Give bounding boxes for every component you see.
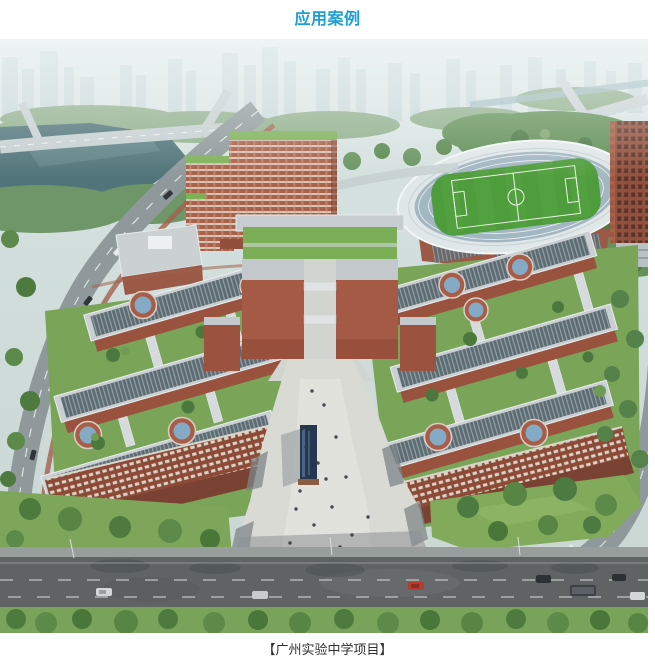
bottom-road: [0, 537, 648, 613]
campus-aerial-figure: [0, 39, 648, 633]
gate-monument: [281, 425, 319, 487]
application-case-section: 应用案例: [0, 0, 655, 656]
atmospheric-haze: [0, 39, 648, 179]
sky-bridge: [304, 315, 336, 324]
image-caption: 【广州实验中学项目】: [0, 639, 655, 656]
campus-aerial-rendering: [0, 39, 648, 633]
bottom-tree-row: [0, 607, 648, 633]
section-title: 应用案例: [0, 0, 655, 29]
sky-bridge: [304, 282, 336, 291]
